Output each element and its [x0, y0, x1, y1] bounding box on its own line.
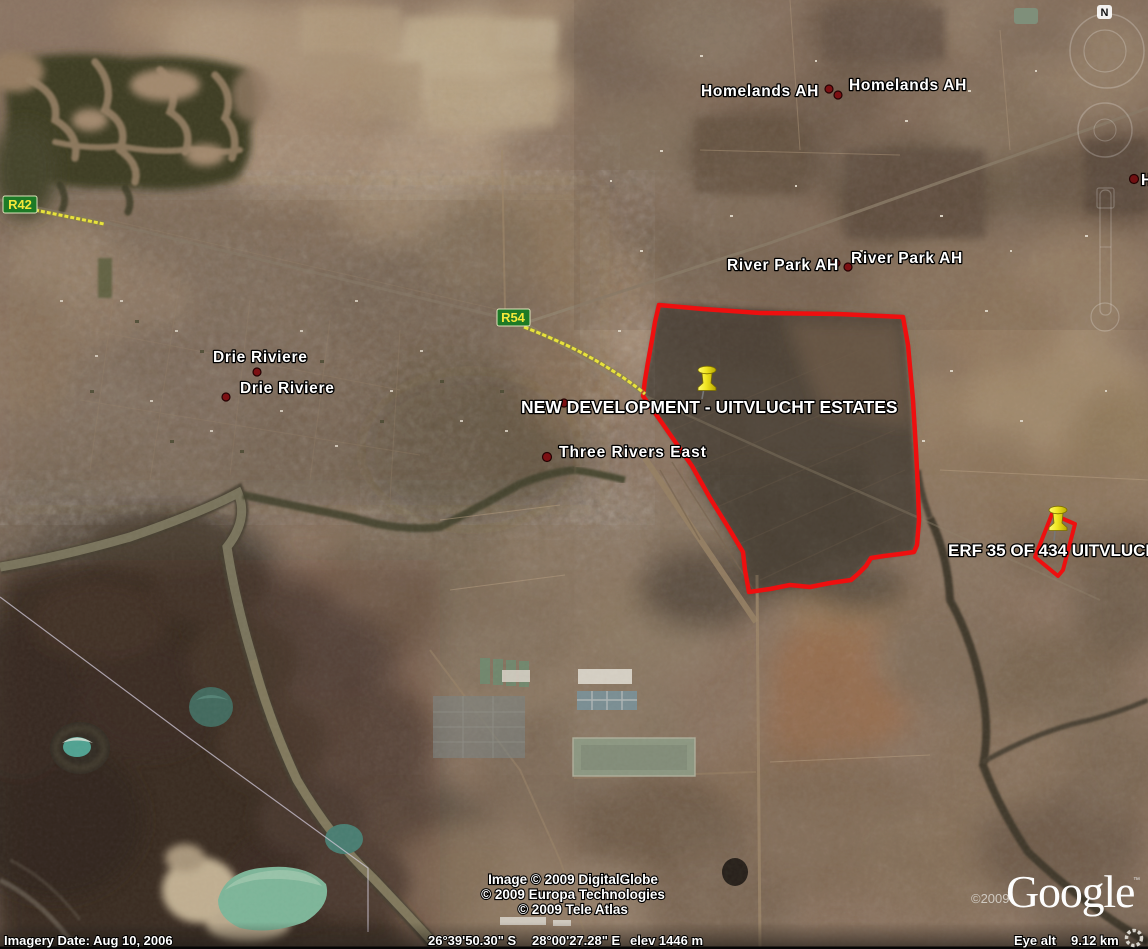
svg-text:™: ™ — [1133, 877, 1140, 884]
svg-text:9.12 km: 9.12 km — [1071, 933, 1119, 948]
svg-text:©2009: ©2009 — [971, 891, 1010, 906]
svg-text:Imagery Date: Aug 10, 2006: Imagery Date: Aug 10, 2006 — [4, 933, 173, 948]
svg-text:River Park AH: River Park AH — [727, 257, 839, 274]
svg-text:Drie Riviere: Drie Riviere — [240, 380, 335, 397]
svg-text:Eye alt: Eye alt — [1014, 933, 1057, 948]
svg-text:ERF 35 OF 434 UITVLUCHT ES: ERF 35 OF 434 UITVLUCHT ES — [948, 541, 1148, 560]
svg-text:N: N — [1101, 7, 1109, 19]
svg-text:Ho: Ho — [1141, 172, 1148, 189]
svg-text:R42: R42 — [8, 197, 32, 212]
svg-text:elev 1446 m: elev 1446 m — [630, 933, 703, 948]
svg-text:Google: Google — [1006, 866, 1134, 917]
svg-text:R54: R54 — [501, 310, 526, 325]
svg-text:Drie Riviere: Drie Riviere — [213, 349, 308, 366]
svg-text:26°39'50.30" S: 26°39'50.30" S — [428, 933, 517, 948]
svg-text:© 2009 Europa Technologies: © 2009 Europa Technologies — [481, 887, 665, 902]
svg-text:River Park AH: River Park AH — [851, 250, 963, 267]
svg-text:© 2009 Tele Atlas: © 2009 Tele Atlas — [518, 902, 628, 917]
svg-text:Image © 2009 DigitalGlobe: Image © 2009 DigitalGlobe — [488, 872, 658, 887]
svg-text:Homelands AH: Homelands AH — [849, 77, 967, 94]
svg-text:Three Rivers East: Three Rivers East — [559, 444, 707, 461]
svg-text:NEW DEVELOPMENT - UITVLUCHT ES: NEW DEVELOPMENT - UITVLUCHT ESTATES — [521, 397, 898, 417]
svg-text:Homelands AH: Homelands AH — [701, 83, 819, 100]
svg-text:28°00'27.28" E: 28°00'27.28" E — [532, 933, 621, 948]
